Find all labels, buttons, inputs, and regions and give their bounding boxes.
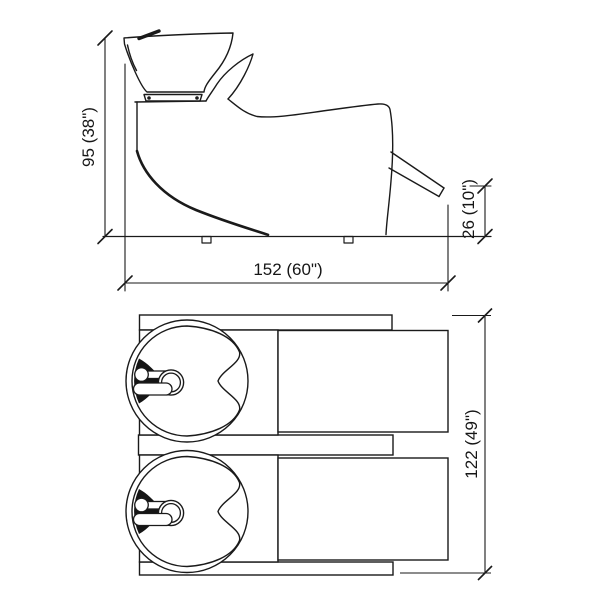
depth-dimension-label: 122 (49") <box>462 409 481 478</box>
mount-bolt-left <box>147 96 151 100</box>
seat-top-2 <box>278 458 448 560</box>
seat-top-1 <box>278 331 448 433</box>
bowl-plan-assembly-2 <box>126 451 248 573</box>
faucet-knob <box>135 368 149 382</box>
mount-bolt-right <box>195 96 199 100</box>
bowl-plan-assembly <box>126 320 248 442</box>
backwash-unit-dimension-drawing: 95 (38") 152 (60") 26 (10") <box>0 0 600 600</box>
footrest-clearance-label: 26 (10") <box>459 179 478 239</box>
bowl-mount-plate <box>144 95 202 102</box>
width-dimension-label: 152 (60") <box>253 260 322 279</box>
faucet-lever <box>134 383 173 395</box>
technical-drawing-page: 95 (38") 152 (60") 26 (10") <box>0 0 600 600</box>
height-dimension-label: 95 (38") <box>79 107 98 167</box>
